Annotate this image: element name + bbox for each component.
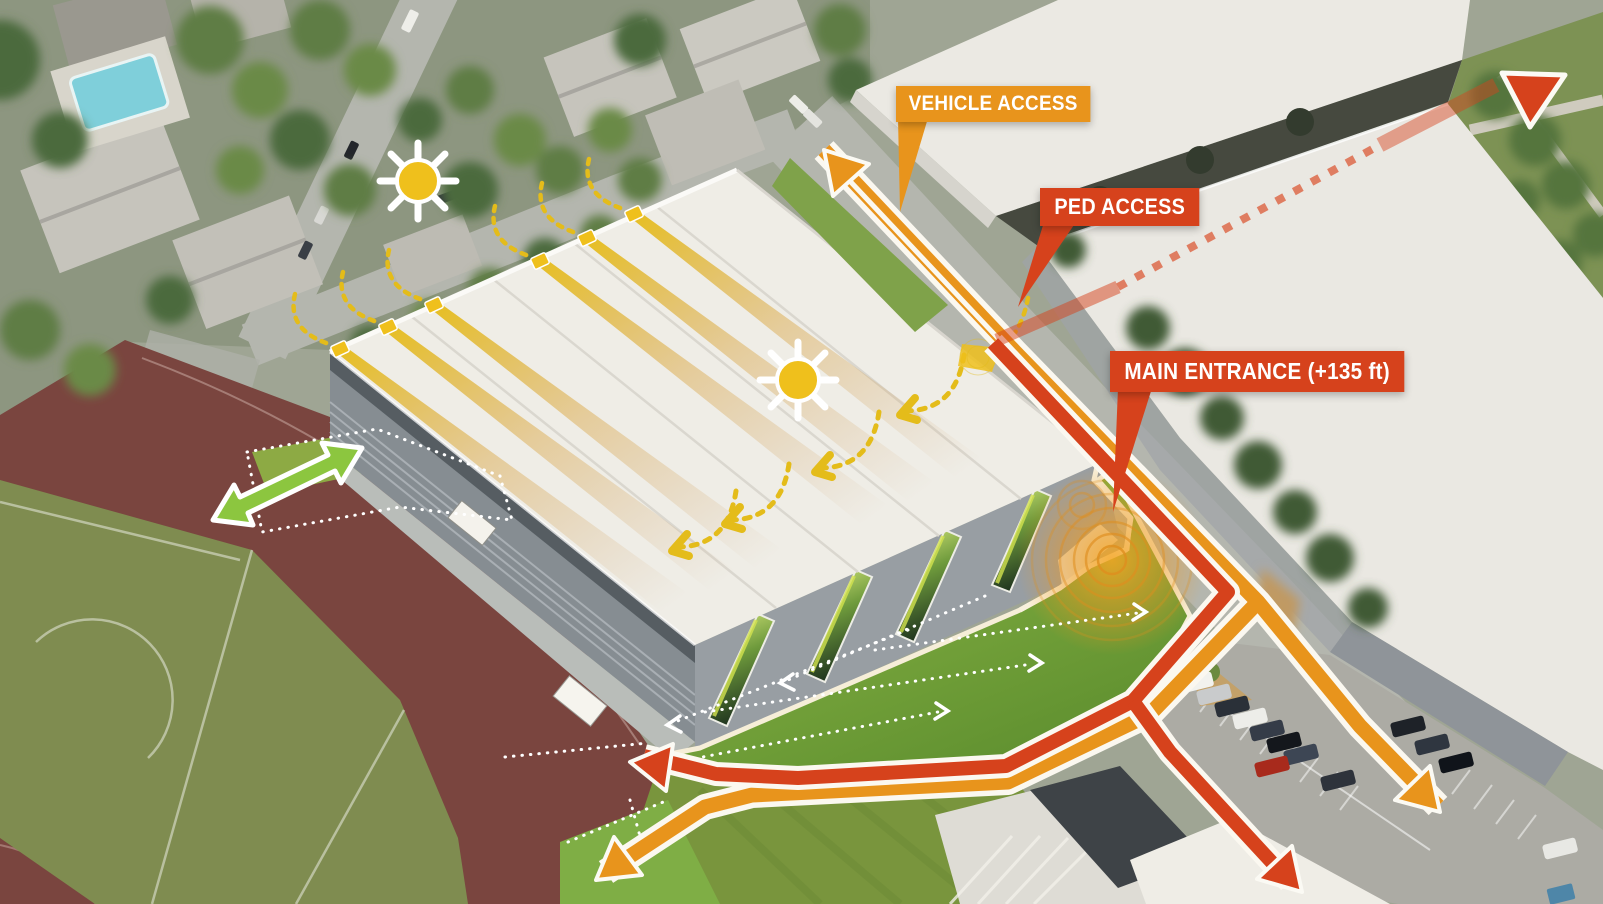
vehicle-access-label: VEHICLE ACCESS (896, 86, 1090, 122)
entrance-glow (1017, 465, 1207, 655)
main-entrance-label: MAIN ENTRANCE (+135 ft) (1110, 351, 1404, 392)
site-access-diagram: VEHICLE ACCESS PED ACCESS MAIN ENTRANCE … (0, 0, 1603, 904)
sun-icon-roof (760, 342, 836, 418)
ped-access-label: PED ACCESS (1040, 188, 1199, 226)
sun-icon-west (380, 143, 456, 219)
aerial-rendering (0, 0, 1603, 904)
